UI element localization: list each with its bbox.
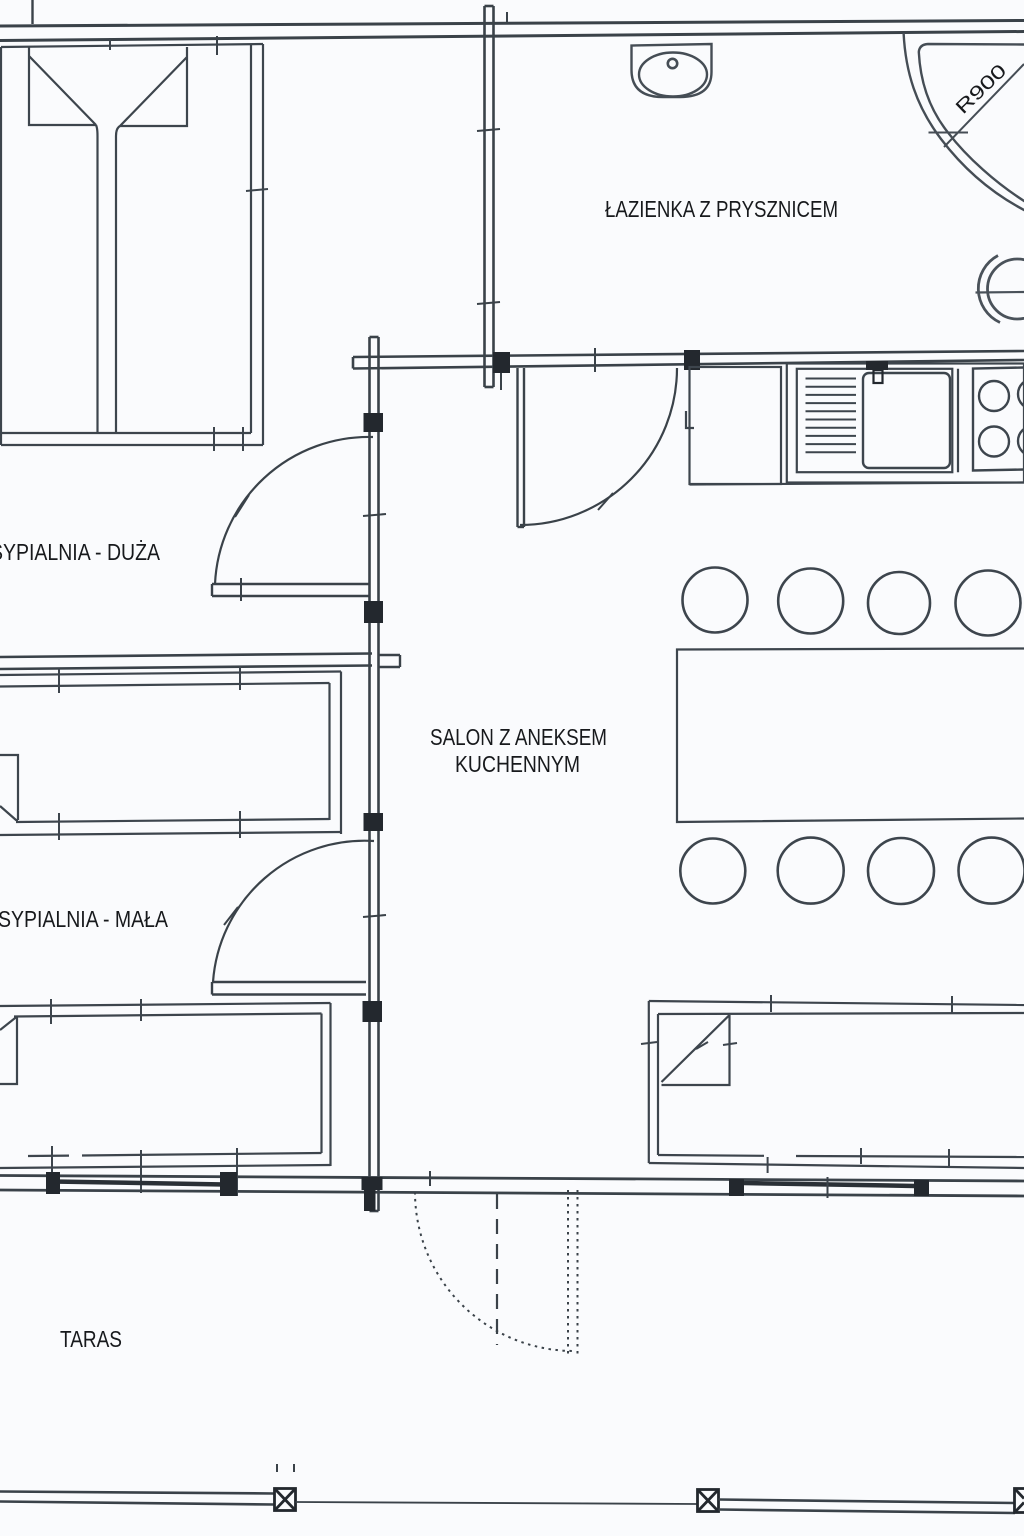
svg-text:KUCHENNYM: KUCHENNYM [455,751,580,777]
svg-text:SALON Z ANEKSEM: SALON Z ANEKSEM [430,724,607,750]
svg-text:SYPIALNIA - DUŻA: SYPIALNIA - DUŻA [0,539,161,565]
svg-text:TARAS: TARAS [60,1326,122,1352]
svg-text:ŁAZIENKA Z PRYSZNICEM: ŁAZIENKA Z PRYSZNICEM [605,196,838,222]
svg-text:SYPIALNIA - MAŁA: SYPIALNIA - MAŁA [0,906,169,932]
